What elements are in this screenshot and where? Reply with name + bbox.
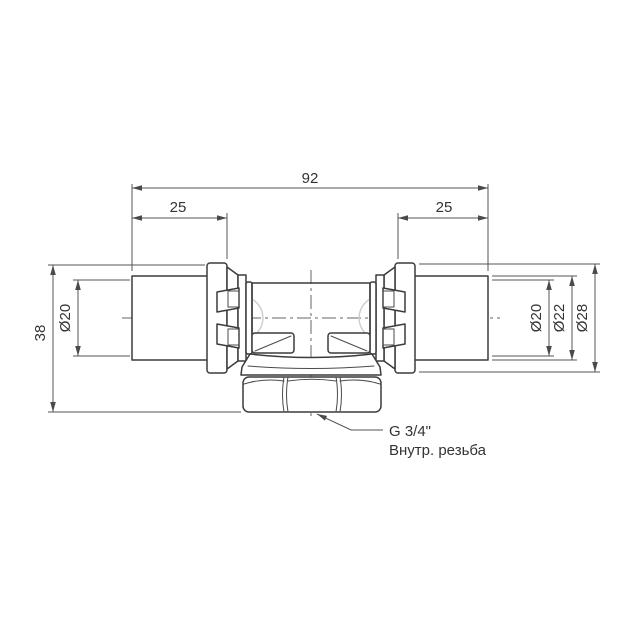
dim-label-overall-width: 92 bbox=[302, 170, 319, 187]
thread-size-label: G 3/4" bbox=[389, 423, 431, 440]
arrowhead bbox=[569, 350, 575, 360]
right-flange bbox=[395, 263, 415, 373]
arrowhead bbox=[398, 215, 408, 221]
arrowhead bbox=[75, 280, 81, 290]
dimension-insert-left: 25 bbox=[132, 199, 227, 259]
arrowhead bbox=[132, 185, 142, 191]
arrowhead bbox=[546, 280, 552, 290]
collar bbox=[241, 354, 381, 375]
right-sleeve-tube bbox=[413, 276, 488, 360]
left-cap bbox=[227, 267, 238, 369]
dimension-insert-right: 25 bbox=[398, 199, 488, 259]
thread-annotation: G 3/4" Внутр. резьба bbox=[317, 414, 487, 459]
arrowhead bbox=[569, 276, 575, 286]
leader-arrowhead bbox=[317, 414, 327, 421]
hex-nut-outline bbox=[243, 377, 381, 412]
arrowhead bbox=[50, 265, 56, 275]
dim-label-insert-left: 25 bbox=[170, 199, 187, 216]
arrowhead bbox=[478, 185, 488, 191]
tee-fitting-technical-drawing: 92 25 25 38 bbox=[0, 0, 630, 630]
dim-label-height: 38 bbox=[32, 325, 49, 342]
right-sleeve-assembly bbox=[370, 263, 488, 373]
dim-label-insert-right: 25 bbox=[436, 199, 453, 216]
arrowhead bbox=[50, 402, 56, 412]
dim-label-sleeve-od: Ø22 bbox=[551, 304, 568, 332]
arrowhead bbox=[546, 346, 552, 356]
arrowhead bbox=[132, 215, 142, 221]
dimension-overall-width: 92 bbox=[132, 170, 488, 271]
left-flange bbox=[207, 263, 227, 373]
arrowhead bbox=[217, 215, 227, 221]
arrowhead bbox=[592, 264, 598, 274]
thread-type-label: Внутр. резьба bbox=[389, 442, 487, 459]
arrowhead bbox=[478, 215, 488, 221]
leader-line bbox=[317, 414, 383, 430]
left-sleeve-assembly bbox=[132, 263, 252, 373]
dim-label-bore-right: Ø20 bbox=[528, 304, 545, 332]
dim-label-bore-left: Ø20 bbox=[57, 304, 74, 332]
right-cap bbox=[384, 267, 395, 369]
arrowhead bbox=[592, 362, 598, 372]
dimension-bore-left: Ø20 bbox=[57, 280, 130, 356]
left-sleeve-tube bbox=[132, 276, 209, 360]
drawing-canvas: 92 25 25 38 bbox=[0, 0, 630, 630]
dim-label-collar-od: Ø28 bbox=[574, 304, 591, 332]
left-rim bbox=[246, 282, 252, 354]
arrowhead bbox=[75, 346, 81, 356]
dimension-bore-right: Ø20 bbox=[492, 280, 554, 356]
right-rim bbox=[370, 282, 376, 354]
hex-nut bbox=[243, 377, 381, 412]
